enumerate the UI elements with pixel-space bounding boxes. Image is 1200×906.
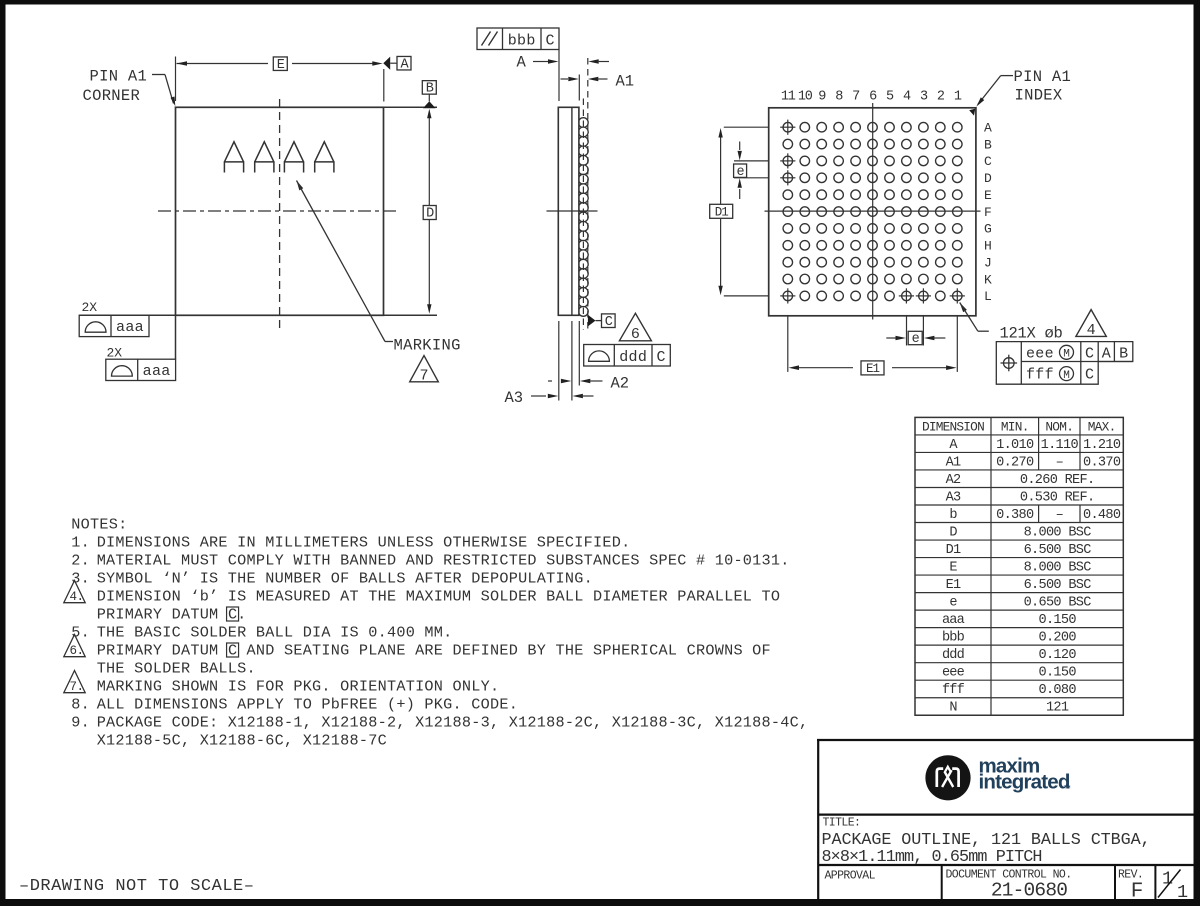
svg-text:0.150: 0.150 bbox=[1039, 666, 1077, 681]
svg-text:X12188-5C, X12188-6C, X12188-7: X12188-5C, X12188-6C, X12188-7C bbox=[97, 732, 387, 750]
svg-text:121X øb: 121X øb bbox=[1000, 324, 1063, 342]
svg-text:0.480: 0.480 bbox=[1083, 508, 1121, 523]
svg-text:™: ™ bbox=[1063, 784, 1071, 793]
svg-text:0.530 REF.: 0.530 REF. bbox=[1020, 490, 1095, 505]
svg-text:PIN A1: PIN A1 bbox=[90, 68, 148, 86]
svg-text:A1: A1 bbox=[946, 455, 961, 470]
svg-text:G: G bbox=[984, 222, 992, 237]
svg-text:0.120: 0.120 bbox=[1039, 648, 1077, 663]
svg-text:A1: A1 bbox=[616, 73, 635, 91]
svg-text:integrated: integrated bbox=[979, 771, 1070, 794]
svg-text:C: C bbox=[984, 154, 992, 169]
svg-text:C: C bbox=[656, 349, 665, 366]
svg-text:8.000 BSC: 8.000 BSC bbox=[1024, 561, 1092, 576]
svg-text:4.: 4. bbox=[70, 590, 84, 604]
svg-text:1.210: 1.210 bbox=[1083, 438, 1121, 453]
svg-text:8: 8 bbox=[835, 90, 843, 105]
svg-text:NOTES:: NOTES: bbox=[71, 516, 127, 534]
svg-text:MARKING: MARKING bbox=[394, 337, 461, 355]
svg-text:N: N bbox=[949, 701, 957, 716]
svg-text:NOM.: NOM. bbox=[1045, 419, 1073, 434]
svg-text:7.: 7. bbox=[70, 680, 84, 694]
svg-text:2: 2 bbox=[937, 90, 945, 105]
svg-text:121: 121 bbox=[1046, 701, 1069, 716]
svg-text:TITLE:: TITLE: bbox=[823, 817, 861, 830]
svg-text:6: 6 bbox=[869, 90, 877, 105]
svg-text:1.010: 1.010 bbox=[996, 438, 1034, 453]
svg-text:0.370: 0.370 bbox=[1083, 455, 1121, 470]
svg-text:1.110: 1.110 bbox=[1041, 438, 1079, 453]
svg-text:A2: A2 bbox=[946, 473, 961, 488]
svg-text:1.: 1. bbox=[71, 534, 90, 552]
svg-text:C: C bbox=[545, 33, 554, 50]
svg-text:0.260 REF.: 0.260 REF. bbox=[1020, 473, 1095, 488]
svg-text:MATERIAL MUST COMPLY WITH BANN: MATERIAL MUST COMPLY WITH BANNED AND RES… bbox=[97, 552, 790, 570]
svg-text:9: 9 bbox=[818, 90, 826, 105]
svg-text:0.270: 0.270 bbox=[996, 455, 1034, 470]
svg-text:E1: E1 bbox=[866, 362, 880, 376]
svg-text:7: 7 bbox=[852, 90, 860, 105]
svg-text:DIMENSION ‘b’ IS MEASURED AT T: DIMENSION ‘b’ IS MEASURED AT THE MAXIMUM… bbox=[97, 588, 781, 606]
svg-text:DIMENSIONS ARE IN MILLIMETERS: DIMENSIONS ARE IN MILLIMETERS UNLESS OTH… bbox=[97, 534, 631, 552]
svg-text:E: E bbox=[277, 58, 285, 73]
svg-text:PACKAGE CODE: X12188-1, X12188: PACKAGE CODE: X12188-1, X12188-2, X12188… bbox=[97, 714, 809, 732]
svg-text:PRIMARY DATUM AND SEATING PL: PRIMARY DATUM AND SEATING PLANE ARE DEFI… bbox=[97, 642, 771, 660]
svg-text:M: M bbox=[1063, 349, 1070, 361]
svg-text:aaa: aaa bbox=[116, 319, 144, 336]
svg-text:2X: 2X bbox=[107, 346, 123, 361]
svg-text:E1: E1 bbox=[946, 578, 961, 593]
svg-text:ALL DIMENSIONS APPLY TO PbFREE: ALL DIMENSIONS APPLY TO PbFREE (+) PKG. … bbox=[97, 696, 518, 714]
svg-text:6.500 BSC: 6.500 BSC bbox=[1024, 543, 1092, 558]
svg-text:e: e bbox=[912, 332, 920, 347]
svg-text:B: B bbox=[984, 137, 992, 152]
svg-text:MIN.: MIN. bbox=[1001, 419, 1029, 434]
svg-text:D1: D1 bbox=[946, 543, 961, 558]
svg-text:3.: 3. bbox=[71, 570, 90, 588]
svg-text:ddd: ddd bbox=[942, 648, 964, 663]
svg-text:MARKING SHOWN IS FOR PKG. ORIE: MARKING SHOWN IS FOR PKG. ORIENTATION ON… bbox=[97, 678, 500, 696]
svg-text:5: 5 bbox=[886, 90, 894, 105]
svg-text:1: 1 bbox=[1177, 882, 1188, 903]
svg-text:A: A bbox=[517, 54, 527, 72]
svg-text:H: H bbox=[984, 239, 992, 254]
svg-text:B: B bbox=[1119, 345, 1128, 362]
svg-text:7: 7 bbox=[419, 368, 428, 385]
svg-text:K: K bbox=[984, 272, 992, 287]
svg-text:0.650 BSC: 0.650 BSC bbox=[1024, 596, 1092, 611]
svg-text:–: – bbox=[1056, 455, 1064, 470]
svg-text:C: C bbox=[1085, 345, 1094, 362]
svg-text:C: C bbox=[605, 315, 613, 330]
svg-text:5.: 5. bbox=[71, 624, 90, 642]
svg-text:DIMENSION: DIMENSION bbox=[922, 419, 984, 434]
svg-text:8×8×1.11mm, 0.65mm PITCH: 8×8×1.11mm, 0.65mm PITCH bbox=[822, 848, 1042, 867]
svg-text:THE BASIC SOLDER BALL DIA IS 0: THE BASIC SOLDER BALL DIA IS 0.400 MM. bbox=[97, 624, 453, 642]
svg-text:4: 4 bbox=[1087, 322, 1096, 339]
svg-text:INDEX: INDEX bbox=[1015, 87, 1063, 105]
svg-text:D: D bbox=[984, 171, 992, 186]
svg-text:21-0680: 21-0680 bbox=[991, 880, 1067, 902]
svg-text:D: D bbox=[949, 526, 957, 541]
svg-text:J: J bbox=[984, 255, 992, 270]
svg-text:PRIMARY DATUM .: PRIMARY DATUM . bbox=[97, 606, 247, 624]
svg-text:b: b bbox=[949, 508, 957, 523]
svg-text:THE SOLDER BALLS.: THE SOLDER BALLS. bbox=[97, 660, 256, 678]
svg-text:4: 4 bbox=[903, 90, 911, 105]
svg-text:D1: D1 bbox=[715, 206, 729, 220]
svg-text:bbb: bbb bbox=[508, 33, 536, 50]
svg-text:A: A bbox=[984, 121, 992, 136]
svg-text:L: L bbox=[984, 289, 992, 304]
svg-text:0.200: 0.200 bbox=[1039, 631, 1077, 646]
svg-text:APPROVAL: APPROVAL bbox=[825, 870, 876, 883]
svg-text:0.380: 0.380 bbox=[996, 508, 1034, 523]
svg-text:6.: 6. bbox=[70, 644, 84, 658]
svg-text:F: F bbox=[984, 205, 992, 220]
svg-text:2X: 2X bbox=[82, 300, 98, 315]
svg-text:E: E bbox=[984, 188, 992, 203]
svg-text:eee: eee bbox=[1026, 345, 1054, 362]
svg-text:eee: eee bbox=[942, 666, 965, 681]
svg-text:A2: A2 bbox=[611, 375, 630, 393]
svg-text:D: D bbox=[426, 207, 434, 222]
svg-text:1: 1 bbox=[954, 90, 962, 105]
svg-text:aaa: aaa bbox=[143, 363, 171, 380]
svg-text:F: F bbox=[1131, 881, 1144, 904]
svg-text:bbb: bbb bbox=[942, 631, 965, 646]
svg-text:9.: 9. bbox=[71, 714, 90, 732]
svg-text:A3: A3 bbox=[505, 389, 524, 407]
svg-text:CORNER: CORNER bbox=[83, 87, 141, 105]
svg-text:11: 11 bbox=[781, 90, 796, 105]
svg-text:ddd: ddd bbox=[619, 349, 647, 366]
svg-text:e: e bbox=[949, 596, 957, 611]
svg-text:fff: fff bbox=[942, 683, 965, 698]
svg-text:A: A bbox=[1102, 345, 1111, 362]
svg-text:6: 6 bbox=[631, 326, 640, 343]
svg-text:8.: 8. bbox=[71, 696, 90, 714]
svg-text:E: E bbox=[949, 561, 957, 576]
svg-text:aaa: aaa bbox=[942, 613, 965, 628]
svg-text:8.000 BSC: 8.000 BSC bbox=[1024, 526, 1092, 541]
svg-text:MAX.: MAX. bbox=[1088, 419, 1116, 434]
svg-text:fff: fff bbox=[1026, 367, 1054, 384]
svg-text:3: 3 bbox=[920, 90, 928, 105]
svg-text:0.080: 0.080 bbox=[1039, 683, 1077, 698]
svg-text:e: e bbox=[737, 165, 745, 180]
svg-text:A3: A3 bbox=[946, 490, 961, 505]
svg-text:0.150: 0.150 bbox=[1039, 613, 1077, 628]
svg-text:PIN A1: PIN A1 bbox=[1014, 68, 1072, 86]
svg-text:10: 10 bbox=[798, 90, 813, 105]
svg-text:6.500 BSC: 6.500 BSC bbox=[1024, 578, 1092, 593]
svg-text:–: – bbox=[1056, 508, 1064, 523]
svg-text:M: M bbox=[1063, 370, 1070, 382]
svg-text:–DRAWING NOT TO SCALE–: –DRAWING NOT TO SCALE– bbox=[19, 877, 254, 896]
svg-text:SYMBOL ‘N’ IS THE NUMBER OF BA: SYMBOL ‘N’ IS THE NUMBER OF BALLS AFTER … bbox=[97, 570, 593, 588]
svg-text:2.: 2. bbox=[71, 552, 90, 570]
svg-text:C: C bbox=[1085, 367, 1094, 384]
